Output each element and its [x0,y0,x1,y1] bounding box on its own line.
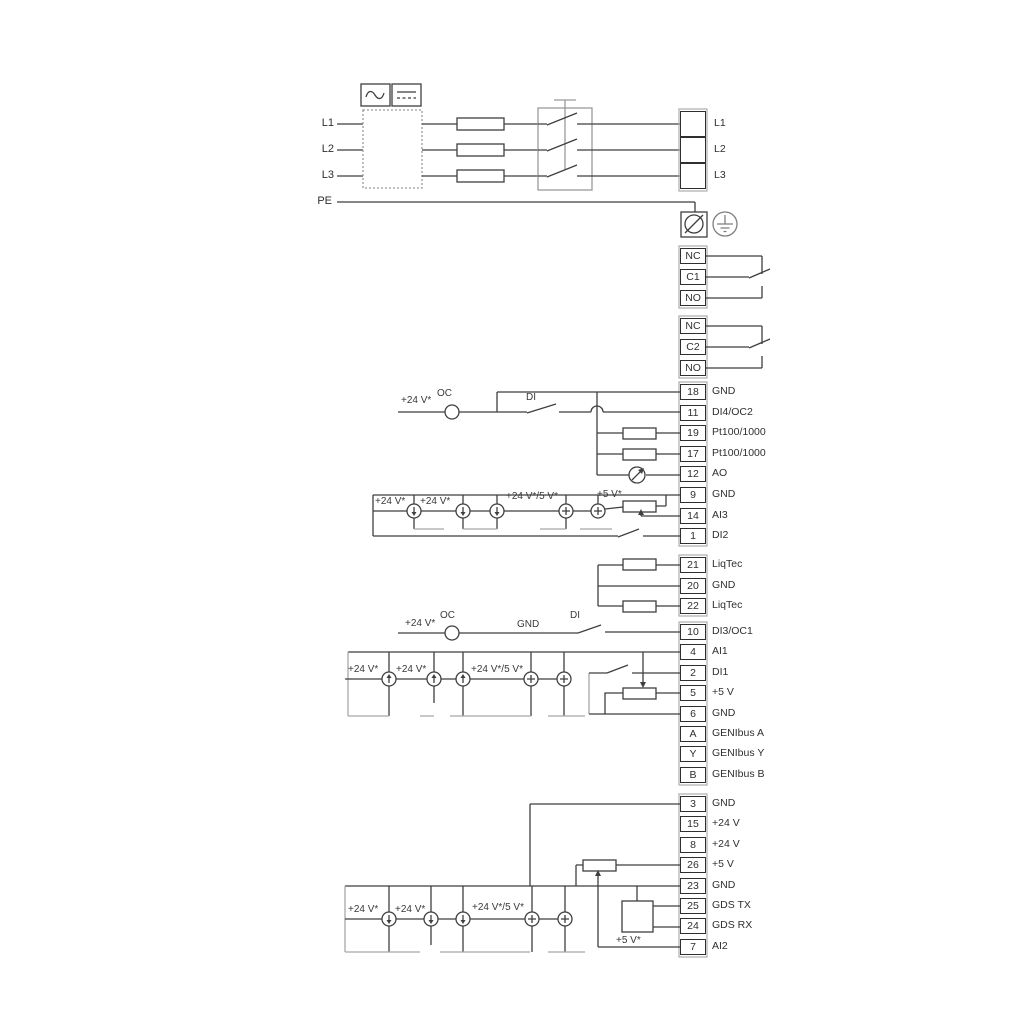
terminal-cell-io_d-25: 25 [680,898,706,914]
terminal-cell-io_d-26: 26 [680,857,706,873]
gds-sensor-icon [622,886,680,932]
terminal-label-io_d-3: GND [712,797,735,809]
terminal-label-io_b-22: LiqTec [712,599,742,611]
plus24or5-label: +24 V*/5 V* [471,664,523,675]
terminal-cell-relay2-NO: NO [680,360,706,376]
terminal-cell-io_b-20: 20 [680,578,706,594]
terminal-label-io_a-12: AO [712,467,727,479]
terminal-cell-io_d-8: 8 [680,837,706,853]
terminal-label-io_c-5: +5 V [712,686,734,698]
terminal-label-io_d-7: AI2 [712,940,728,952]
terminal-label-io_c-Y: GENIbus Y [712,747,764,759]
terminal-cell-io_d-23: 23 [680,878,706,894]
terminal-cell-io_a-17: 17 [680,446,706,462]
oc-label: OC [437,388,452,399]
screw-terminal-icon [681,212,707,237]
relay1-contact-icon [706,256,770,298]
terminal-cell-io_b-21: 21 [680,557,706,573]
terminal-cell-relay1-C1: C1 [680,269,706,285]
plus24-label: +24 V* [396,664,426,675]
terminal-cell-io_c-2: 2 [680,665,706,681]
terminal-cell-mains_out-L2 [680,137,706,163]
liqtec-sensor-icon [623,601,656,612]
terminal-cell-relay2-NC: NC [680,318,706,334]
ai1-section-wiring [345,652,680,716]
terminal-label-io_c-2: DI1 [712,666,728,678]
terminal-cell-io_c-10: 10 [680,624,706,640]
terminal-label-io_b-21: LiqTec [712,558,742,570]
mains-label-l2: L2 [310,143,334,155]
mains-label-l3: L3 [310,169,334,181]
terminal-label-io_d-23: GND [712,879,735,891]
plus24-label: +24 V* [348,664,378,675]
terminal-label-io_d-26: +5 V [712,858,734,870]
terminal-label-io_c-B: GENIbus B [712,768,765,780]
terminal-cell-io_a-9: 9 [680,487,706,503]
terminal-label-io_a-1: DI2 [712,529,728,541]
pt100-sensor-icon [597,428,680,460]
plus24-label: +24 V* [420,496,450,507]
plus24-label: +24 V* [375,496,405,507]
terminal-label-io_b-20: GND [712,579,735,591]
terminal-label-io_d-15: +24 V [712,817,740,829]
di-label: DI [570,610,580,621]
terminal-label-mains_out-L1: L1 [714,117,726,129]
terminal-cell-io_d-24: 24 [680,918,706,934]
terminal-cell-mains_out-L1 [680,111,706,137]
terminal-label-io_c-4: AI1 [712,645,728,657]
terminal-cell-io_c-6: 6 [680,706,706,722]
di-label: DI [526,392,536,403]
terminal-cell-io_c-5: 5 [680,685,706,701]
terminal-cell-relay1-NO: NO [680,290,706,306]
gds-section-wiring [345,804,680,952]
terminal-label-io_c-A: GENIbus A [712,727,764,739]
terminal-cell-relay1-NC: NC [680,248,706,264]
plus24or5-label: +24 V*/5 V* [472,902,524,913]
wiring-svg [0,0,1024,1024]
terminal-cell-io_d-7: 7 [680,939,706,955]
fuse-icon [422,118,538,182]
disconnect-switch-icon [538,100,680,190]
terminal-cell-relay2-C2: C2 [680,339,706,355]
terminal-cell-mains_out-L3 [680,163,706,189]
terminal-label-io_a-19: Pt100/1000 [712,426,766,438]
ac-icon [361,84,390,106]
relay2-contact-icon [706,326,770,368]
mains-input-wires [337,124,695,212]
converter-box [361,84,422,188]
terminal-label-io_d-25: GDS TX [712,899,751,911]
plus24or5-label: +24 V*/5 V* [506,491,558,502]
terminal-cell-io_c-A: A [680,726,706,742]
wiring-diagram: L1 L2 L3 PE L1L2L3NCC1NONCC2NO18GND11DI4… [0,0,1024,1024]
gnd-label: GND [517,619,539,630]
liqtec-sensor-icon [623,559,656,570]
oc-source-icon [445,405,459,419]
terminal-cell-io_d-3: 3 [680,796,706,812]
terminal-cell-io_c-Y: Y [680,746,706,762]
terminal-label-io_c-10: DI3/OC1 [712,625,753,637]
plus24-label: +24 V* [405,618,435,629]
oc-label: OC [440,610,455,621]
terminal-label-io_a-17: Pt100/1000 [712,447,766,459]
mains-label-l1: L1 [310,117,334,129]
plus5-label: +5 V* [616,935,641,946]
terminal-label-io_a-14: AI3 [712,509,728,521]
terminal-cell-io_a-14: 14 [680,508,706,524]
terminal-cell-io_c-4: 4 [680,644,706,660]
terminal-label-io_a-9: GND [712,488,735,500]
plus24-label: +24 V* [401,395,431,406]
potentiometer-icon [605,652,680,714]
terminal-label-io_d-8: +24 V [712,838,740,850]
mains-label-pe: PE [308,195,332,207]
plus24-label: +24 V* [348,904,378,915]
terminal-cell-io_a-19: 19 [680,425,706,441]
terminal-label-io_c-6: GND [712,707,735,719]
terminal-cell-io_c-B: B [680,767,706,783]
di1-switch-icon [589,665,680,673]
plus5-label: +5 V* [597,489,622,500]
terminal-cell-io_a-12: 12 [680,466,706,482]
dc-icon [392,84,421,106]
analog-output-meter-icon [597,467,680,483]
earth-icon [713,212,737,236]
terminal-cell-io_a-1: 1 [680,528,706,544]
terminal-cell-io_d-15: 15 [680,816,706,832]
terminal-cell-io_a-18: 18 [680,384,706,400]
oc-source-icon [445,626,459,640]
liqtec-sensor-wiring [598,559,680,612]
terminal-label-mains_out-L3: L3 [714,169,726,181]
terminal-label-mains_out-L2: L2 [714,143,726,155]
terminal-label-io_a-18: GND [712,385,735,397]
terminal-cell-io_a-11: 11 [680,405,706,421]
terminal-cell-io_b-22: 22 [680,598,706,614]
terminal-label-io_d-24: GDS RX [712,919,752,931]
plus24-label: +24 V* [395,904,425,915]
terminal-label-io_a-11: DI4/OC2 [712,406,753,418]
